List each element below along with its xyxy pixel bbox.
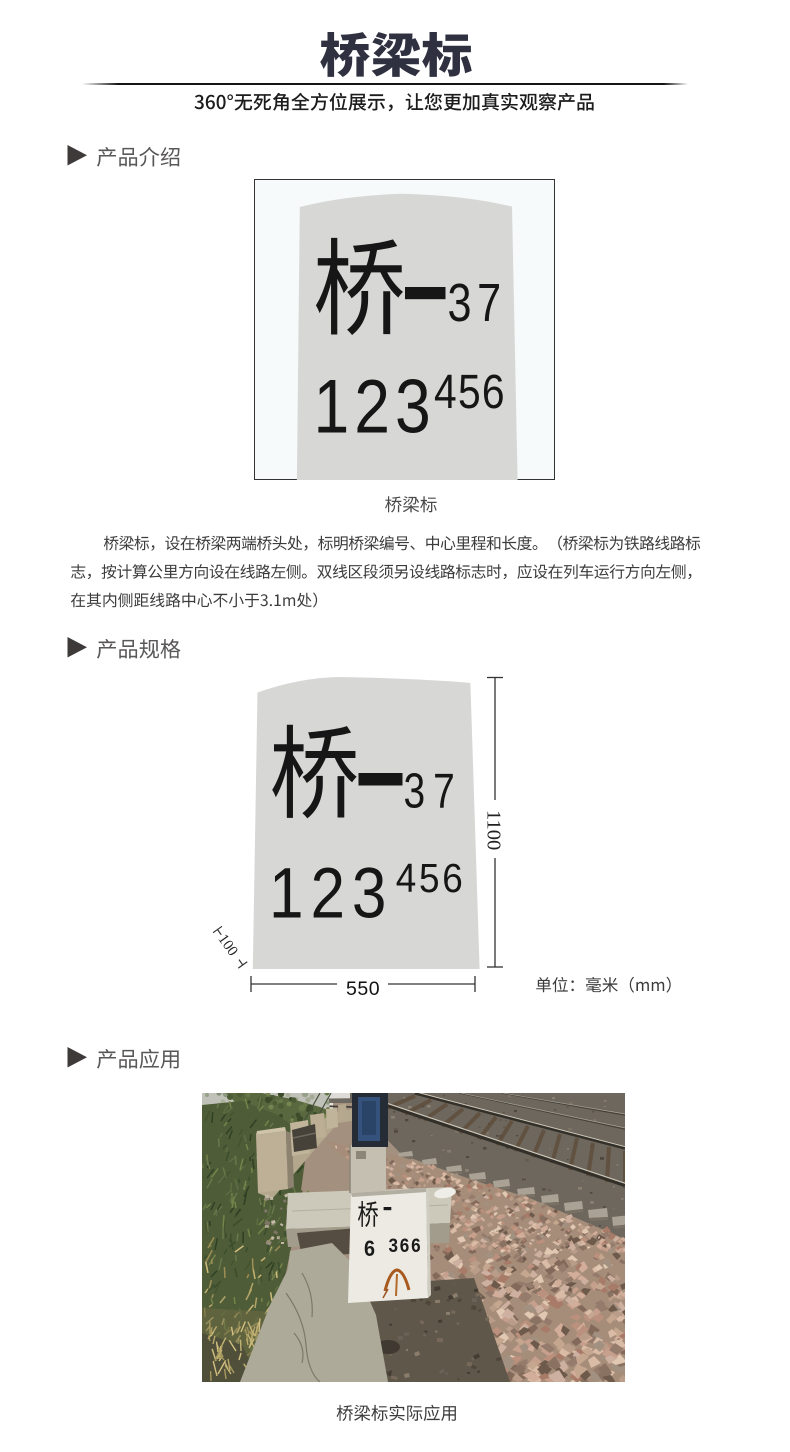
svg-text:100: 100 bbox=[215, 932, 241, 960]
svg-text:37: 37 bbox=[404, 764, 463, 818]
svg-text:456: 456 bbox=[396, 856, 466, 901]
svg-text:456: 456 bbox=[434, 366, 506, 419]
svg-text:366: 366 bbox=[389, 1235, 423, 1256]
svg-text:6: 6 bbox=[364, 1237, 375, 1261]
svg-text:123: 123 bbox=[269, 853, 393, 933]
svg-text:123: 123 bbox=[314, 363, 436, 449]
svg-text:1100: 1100 bbox=[483, 810, 505, 850]
svg-text:550: 550 bbox=[346, 978, 380, 1000]
svg-text:37: 37 bbox=[448, 274, 507, 334]
